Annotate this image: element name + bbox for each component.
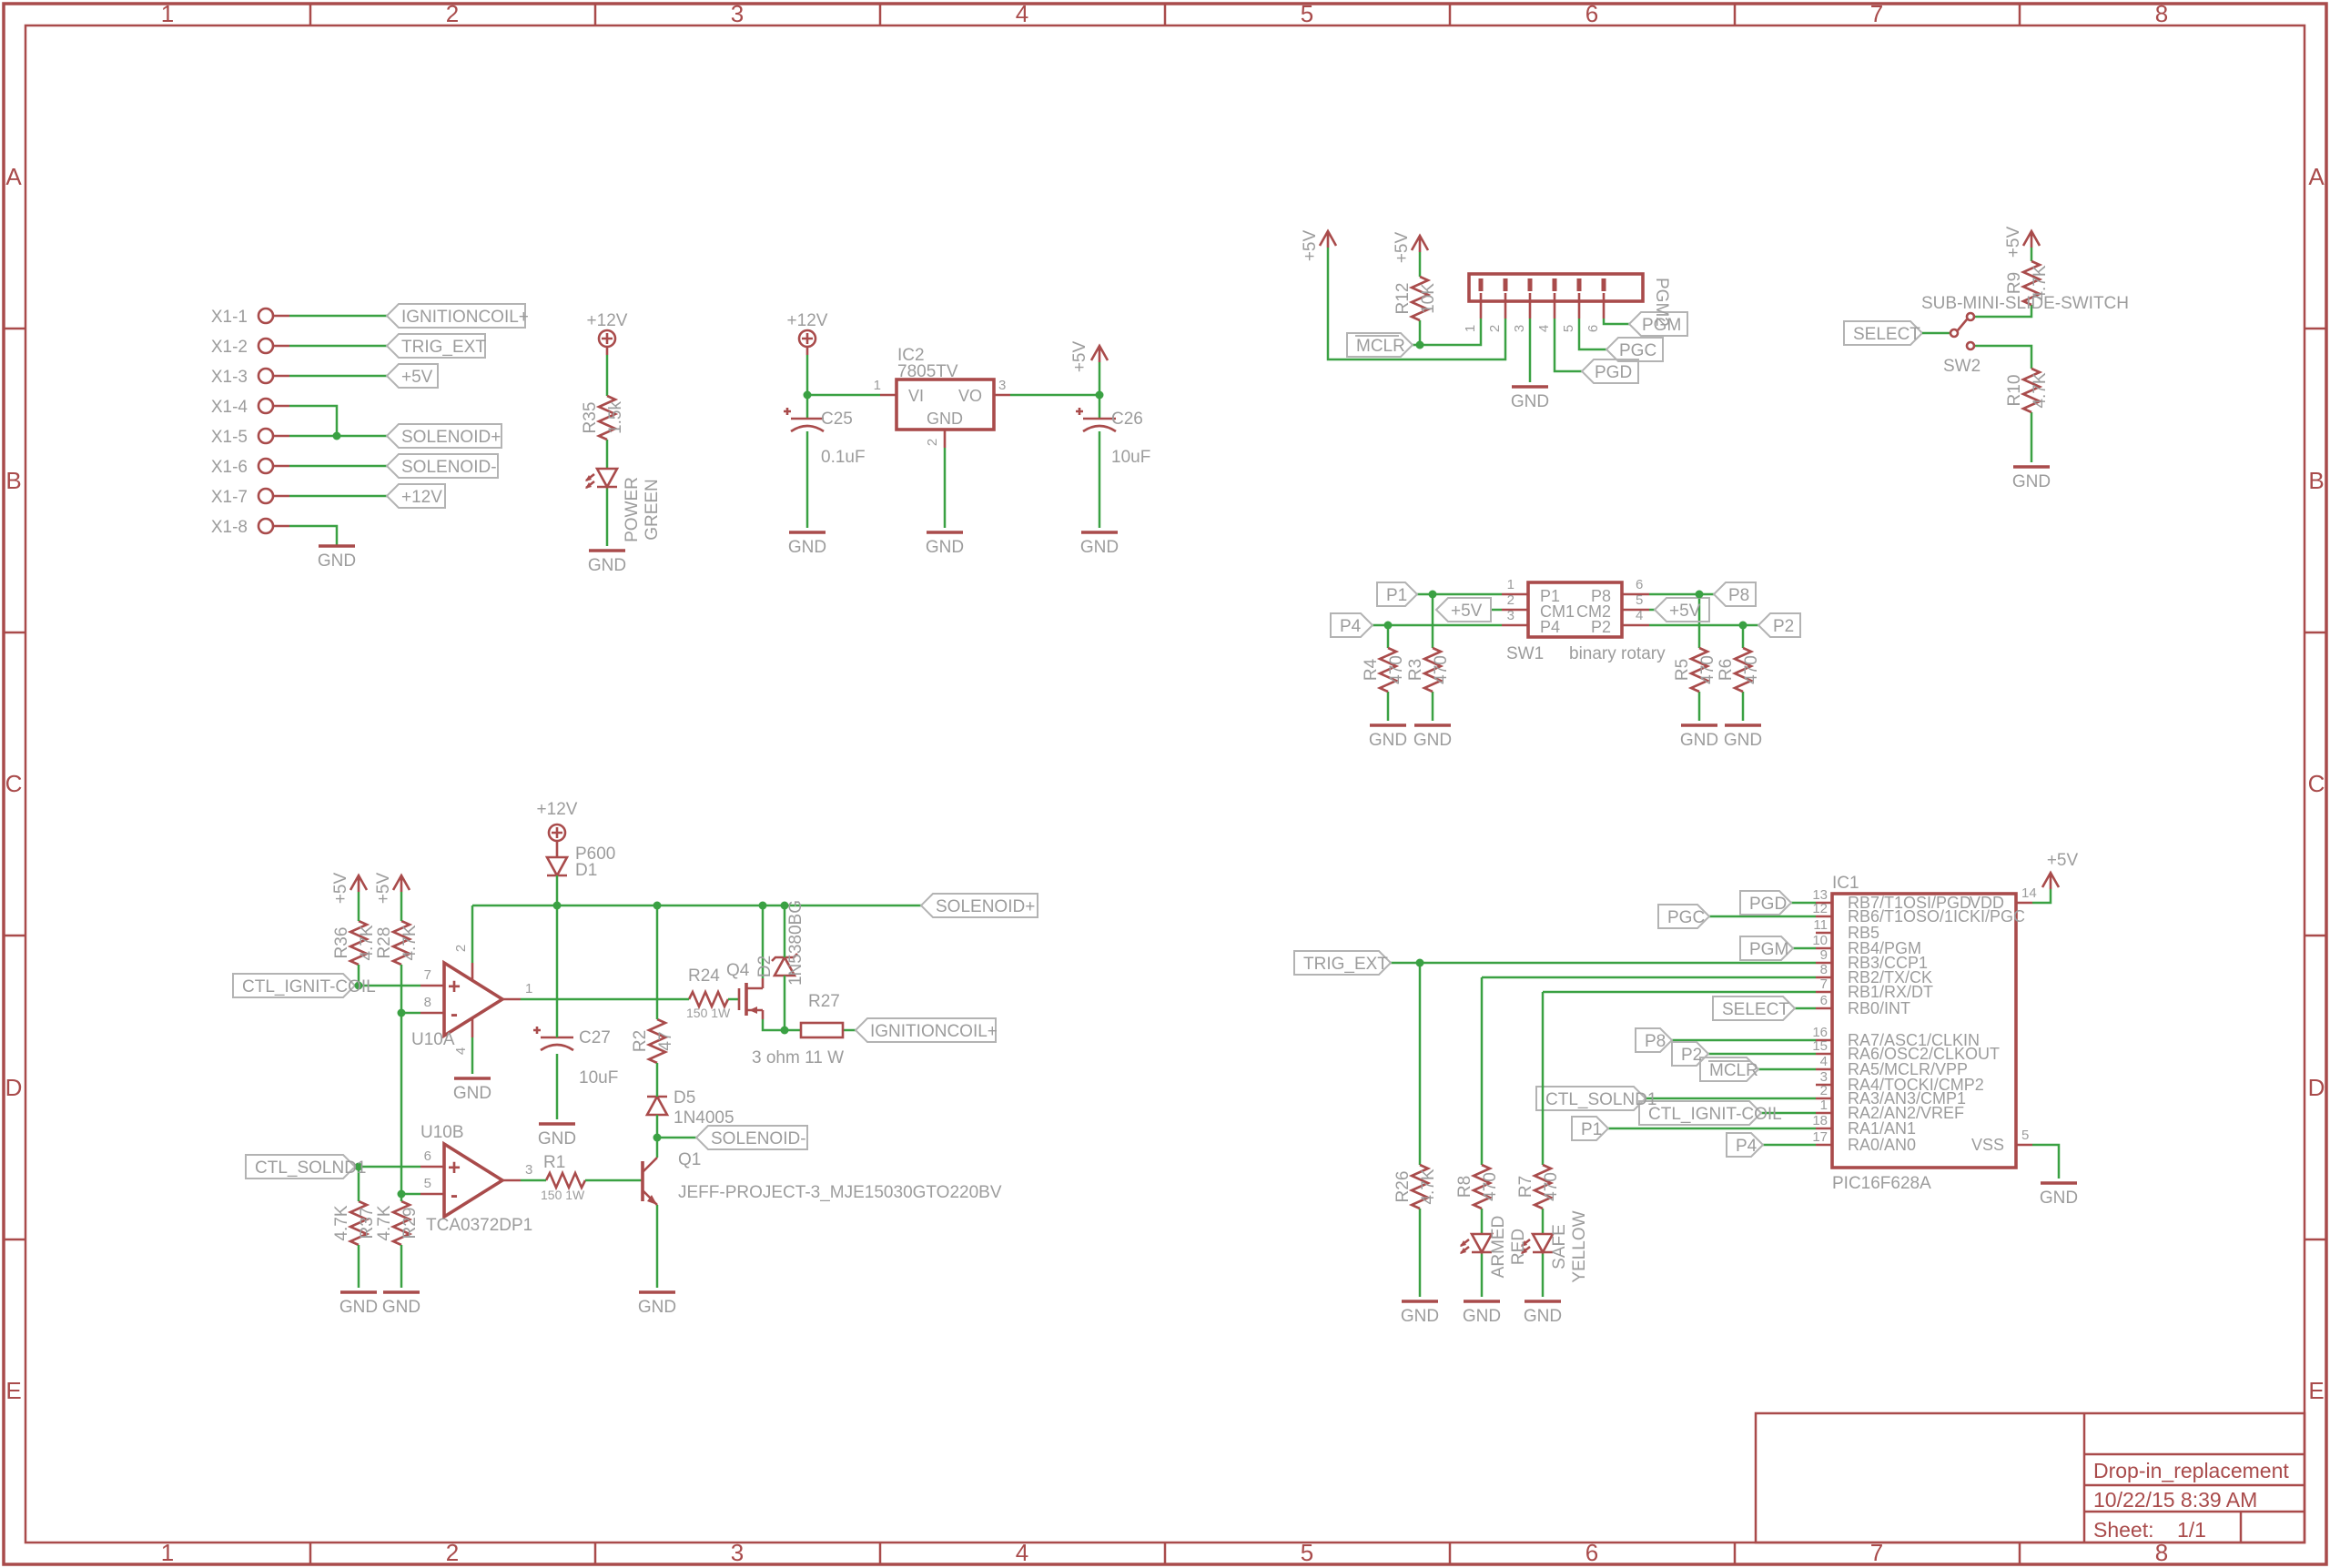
label-regulator-gnd: GND <box>926 538 964 557</box>
label-driver-gnd: GND <box>382 1298 420 1317</box>
label-connector-pins-0-net: IGNITIONCOIL+ <box>401 308 529 327</box>
label-driver-c27v: 10uF <box>579 1068 618 1087</box>
label-border-columns-3: 4 <box>1016 1539 1028 1566</box>
label-driver-sol_p: SOLENOID+ <box>936 897 1035 916</box>
label-mcu-rows-4-n: 9 <box>1820 947 1828 963</box>
label-pgm2-rv: 10K <box>1419 283 1438 314</box>
schematic-labels: 1234567812345678ABCDEABCDEDrop-in_replac… <box>5 0 2325 1566</box>
label-driver-plus: + <box>448 1156 461 1180</box>
label-driver-p6: 6 <box>424 1148 431 1164</box>
label-rotary-pins_r-0: 6 <box>1636 577 1643 592</box>
label-mcu-rows-0-flag: PGD <box>1749 895 1787 914</box>
label-mcu-vcc: +5V <box>2047 851 2079 870</box>
label-slide_switch-r_up_v: 4.7K <box>2031 265 2050 300</box>
label-driver-q4: Q4 <box>726 961 750 980</box>
label-driver-d2: D2 <box>755 956 775 977</box>
label-driver-gnd: GND <box>538 1129 576 1148</box>
label-driver-minus: - <box>451 1002 458 1027</box>
label-connector-pins-5-net: SOLENOID- <box>401 458 497 477</box>
label-driver-oa: U10A <box>411 1030 455 1049</box>
label-rotary-gnd: GND <box>1724 731 1762 750</box>
label-mcu-rows-13-flag: CTL_IGNIT-COIL <box>1648 1105 1782 1124</box>
label-driver-r28: R28 <box>375 927 394 959</box>
label-mcu-p14: 14 <box>2021 885 2037 901</box>
label-driver-r1: R1 <box>543 1153 565 1172</box>
label-border-rows-0: A <box>5 163 22 190</box>
label-mcu-rows-9-n: 15 <box>1812 1038 1828 1054</box>
label-connector-pins-1-name: X1-2 <box>211 338 248 357</box>
label-indicators-r26: R26 <box>1393 1171 1413 1203</box>
label-driver-d5: D5 <box>674 1088 695 1108</box>
label-pgm2-vcc: +5V <box>1393 232 1412 264</box>
label-driver-oa_part: TCA0372DP1 <box>426 1216 532 1235</box>
label-border-columns-0: 1 <box>161 0 174 27</box>
label-regulator-p2: 2 <box>925 439 940 446</box>
label-mcu-rows-12-flag: CTL_SOLND1 <box>1545 1090 1657 1109</box>
label-indicators-led1b: RED <box>1509 1229 1528 1265</box>
label-rotary-flags_l-0: P1 <box>1386 586 1407 605</box>
label-driver-r29v: 4.7K <box>375 1205 394 1240</box>
label-mcu-vss: VSS <box>1971 1136 2004 1154</box>
label-driver-r2: R2 <box>631 1030 650 1052</box>
label-mcu-rows-10-flag: MCLR <box>1709 1061 1758 1080</box>
label-regulator-cout: C26 <box>1111 410 1143 429</box>
label-mcu-rows-14-flag: P1 <box>1581 1120 1602 1139</box>
label-rotary-gnd: GND <box>1680 731 1718 750</box>
label-regulator-out: +5V <box>1070 341 1089 373</box>
label-driver-p2: 2 <box>453 945 469 952</box>
label-indicators-trig: TRIG_EXT <box>1303 955 1388 974</box>
label-driver-p8: 8 <box>424 995 431 1010</box>
label-pgm2-pins-5: 6 <box>1585 325 1601 332</box>
label-indicators-led2b: YELLOW <box>1570 1210 1589 1282</box>
label-indicators-r7v: 470 <box>1542 1172 1561 1201</box>
label-rotary-res-3-n: R6 <box>1717 659 1736 681</box>
label-pgm2-pins-0: 1 <box>1463 325 1478 332</box>
label-driver-d1: D1 <box>575 861 597 880</box>
label-mcu-rows-7-flag: SELECT <box>1722 1000 1789 1019</box>
label-driver-r37: R37 <box>358 1208 377 1239</box>
label-rotary-name: SW1 <box>1506 644 1544 663</box>
label-mcu-rows-15-flag: P4 <box>1736 1137 1758 1156</box>
label-driver-gnd: GND <box>453 1084 491 1103</box>
label-border-columns-2: 3 <box>731 0 744 27</box>
label-indicators-gnd: GND <box>1524 1307 1562 1326</box>
label-driver-minus: - <box>451 1183 458 1208</box>
label-slide_switch-gnd: GND <box>2012 472 2051 491</box>
label-power_led-rv: 1.5k <box>606 401 625 434</box>
label-border-rows-2: C <box>2308 770 2325 797</box>
label-border-columns-0: 1 <box>161 1539 174 1566</box>
label-rotary-pins_l-1: 2 <box>1507 592 1514 608</box>
label-rotary-flags_r-0: P8 <box>1728 586 1749 605</box>
label-slide_switch-net: SELECT <box>1853 325 1920 344</box>
label-rotary-res-1-n: R3 <box>1406 659 1425 681</box>
label-mcu-rows-15-name: RA0/AN0 <box>1848 1136 1916 1154</box>
label-border-columns-7: 8 <box>2155 0 2168 27</box>
label-indicators-r8v: 470 <box>1481 1172 1500 1201</box>
label-regulator-coutv: 10uF <box>1111 448 1150 467</box>
label-mcu-rows-7-n: 6 <box>1820 993 1828 1008</box>
label-driver-d2p: 1N5380BG <box>786 900 805 986</box>
label-slide_switch-r_up: R9 <box>2005 272 2024 294</box>
label-mcu-rows-1-n: 12 <box>1812 901 1828 916</box>
label-border-columns-6: 7 <box>1870 1539 1883 1566</box>
label-border-columns-6: 7 <box>1870 0 1883 27</box>
label-border-columns-1: 2 <box>446 1539 459 1566</box>
label-pgm2-vcc: +5V <box>1301 230 1320 262</box>
label-mcu-rows-5-n: 8 <box>1820 962 1828 977</box>
schematic-sheet: 1234567812345678ABCDEABCDEDrop-in_replac… <box>0 0 2330 1568</box>
power-indicator <box>585 330 625 551</box>
label-pgm2-pins-1: 2 <box>1487 325 1503 332</box>
label-rotary-res-0-v: 470 <box>1387 655 1406 684</box>
label-rotary-res-3-v: 470 <box>1742 655 1761 684</box>
label-power_led-gnd: GND <box>588 556 626 575</box>
label-driver-vcc12: +12V <box>537 800 578 819</box>
label-driver-r2v: 47 <box>656 1031 675 1050</box>
label-pgm2-gnd: GND <box>1511 392 1549 411</box>
label-border-rows-4: E <box>2308 1377 2324 1404</box>
label-connector-pins-3-name: X1-4 <box>211 398 248 417</box>
label-driver-p3: 3 <box>525 1162 532 1178</box>
label-indicators-led1a: ARMED <box>1489 1216 1508 1279</box>
label-rotary-flags_r-1: +5V <box>1669 602 1701 621</box>
label-connector-pins-1-net: TRIG_EXT <box>401 338 486 357</box>
label-border-rows-1: B <box>2308 467 2324 494</box>
label-mcu-rows-12-n: 2 <box>1820 1083 1828 1098</box>
label-driver-d5p: 1N4005 <box>674 1108 734 1128</box>
label-border-columns-5: 6 <box>1585 0 1598 27</box>
label-mcu-rows-2-n: 11 <box>1813 917 1828 933</box>
label-rotary-pins_l-0: 1 <box>1507 577 1514 592</box>
label-rotary-flags_r-2: P2 <box>1773 617 1794 636</box>
label-mcu-vdd: VDD <box>1970 894 2004 912</box>
label-connector-gnd: GND <box>318 551 356 571</box>
label-driver-r24: R24 <box>688 966 720 986</box>
label-border-columns-4: 5 <box>1301 1539 1313 1566</box>
label-pgm2-pgd: PGD <box>1595 363 1632 382</box>
label-power_led-led1: POWER <box>623 477 642 542</box>
label-mcu-rows-14-name: RA1/AN1 <box>1848 1119 1916 1138</box>
label-rotary-pins_r-1: 5 <box>1636 592 1643 608</box>
label-rotary-pins_l-2: 3 <box>1507 608 1514 623</box>
label-driver-p5: 5 <box>424 1176 431 1191</box>
label-rotary-inside_l-2: P4 <box>1540 618 1560 636</box>
label-indicators-r7: R7 <box>1516 1176 1535 1198</box>
label-rotary-pins_r-2: 4 <box>1636 608 1643 623</box>
label-power_led-supply: +12V <box>587 311 628 330</box>
label-driver-r27v: 3 ohm 11 W <box>752 1048 844 1067</box>
label-driver-in2: CTL_SOLND1 <box>255 1158 367 1178</box>
label-pgm2-r: R12 <box>1393 283 1413 315</box>
label-connector-pins-5-name: X1-6 <box>211 458 248 477</box>
label-indicators-gnd: GND <box>1463 1307 1501 1326</box>
label-border-rows-0: A <box>2308 163 2325 190</box>
label-driver-c27: C27 <box>579 1028 611 1047</box>
label-border-columns-4: 5 <box>1301 0 1313 27</box>
label-driver-r36v: 4.7K <box>358 925 377 960</box>
label-rotary-res-2-v: 470 <box>1698 655 1717 684</box>
label-connector-pins-0-name: X1-1 <box>211 308 248 327</box>
junction-dots <box>333 341 1747 1199</box>
label-border-columns-3: 4 <box>1016 0 1028 27</box>
label-driver-r24v: 150 1W <box>686 1006 731 1020</box>
label-slide_switch-vcc: +5V <box>2004 227 2023 258</box>
label-driver-p1: 1 <box>525 981 532 996</box>
label-regulator-vi: VI <box>908 387 924 405</box>
label-driver-r36: R36 <box>332 927 351 959</box>
label-regulator-cin: C25 <box>821 410 853 429</box>
label-title_block-title: Drop-in_replacement <box>2093 1459 2289 1482</box>
label-border-rows-2: C <box>5 770 23 797</box>
label-regulator-p1: 1 <box>874 378 881 393</box>
label-driver-r29: R29 <box>400 1208 420 1239</box>
label-rotary-res-2-n: R5 <box>1673 659 1692 681</box>
schematic-canvas: 1234567812345678ABCDEABCDEDrop-in_replac… <box>0 0 2330 1568</box>
label-driver-gnd: GND <box>339 1298 378 1317</box>
label-regulator-gnd_pin: GND <box>927 410 963 428</box>
label-slide_switch-r_dn: R10 <box>2005 375 2024 407</box>
label-mcu-ic: IC1 <box>1832 874 1859 893</box>
label-title_block-sheet_label: Sheet: <box>2093 1518 2154 1542</box>
label-driver-p4: 4 <box>453 1047 469 1055</box>
label-mcu-rows-1-flag: PGC <box>1667 908 1705 927</box>
label-mcu-p5: 5 <box>2021 1128 2029 1143</box>
label-driver-ob: U10B <box>420 1123 464 1142</box>
label-power_led-r: R35 <box>581 402 600 434</box>
label-border-rows-4: E <box>5 1377 21 1404</box>
label-driver-in1: CTL_IGNIT-COIL <box>242 977 376 996</box>
label-mcu-rows-9-flag: P2 <box>1681 1046 1702 1065</box>
label-indicators-r8: R8 <box>1455 1176 1474 1198</box>
label-slide_switch-part: SUB-MINI-SLIDE-SWITCH <box>1921 294 2129 313</box>
label-indicators-gnd: GND <box>1401 1307 1439 1326</box>
label-border-columns-1: 2 <box>446 0 459 27</box>
label-power_led-led2: GREEN <box>643 479 662 541</box>
label-driver-sol_m: SOLENOID- <box>711 1129 806 1148</box>
label-mcu-rows-14-n: 18 <box>1812 1113 1828 1128</box>
label-driver-q1: Q1 <box>678 1150 701 1169</box>
label-indicators-led2a: SAFE <box>1550 1224 1569 1270</box>
label-driver-p7: 7 <box>424 967 431 983</box>
label-pgm2-pins-3: 4 <box>1536 325 1552 332</box>
label-driver-r28v: 4.7K <box>400 925 420 960</box>
label-driver-plus: + <box>448 975 461 999</box>
label-driver-vcc: +5V <box>374 873 393 905</box>
label-driver-r37v: 4.7K <box>332 1205 351 1240</box>
label-driver-ign: IGNITIONCOIL+ <box>870 1022 998 1041</box>
label-mcu-gnd: GND <box>2040 1189 2078 1208</box>
label-rotary-flags_l-2: P4 <box>1340 617 1362 636</box>
label-regulator-supply: +12V <box>787 311 828 330</box>
label-rotary-res-1-v: 470 <box>1432 655 1451 684</box>
label-indicators-r26v: 4.7K <box>1419 1168 1438 1204</box>
label-title_block-date: 10/22/15 8:39 AM <box>2093 1488 2257 1512</box>
sheet-border <box>4 4 2326 1564</box>
label-pgm2-pgc: PGC <box>1619 341 1656 360</box>
label-border-rows-3: D <box>2308 1074 2325 1101</box>
label-connector-pins-4-name: X1-5 <box>211 428 248 447</box>
label-mcu-rows-8-flag: P8 <box>1645 1032 1666 1051</box>
label-connector-pins-2-net: +5V <box>401 368 433 387</box>
label-mcu-rows-3-n: 10 <box>1812 933 1828 948</box>
label-rotary-gnd: GND <box>1413 731 1452 750</box>
label-title_block-sheet_value: 1/1 <box>2177 1518 2206 1542</box>
label-regulator-vo: VO <box>958 387 982 405</box>
label-pgm2-mclr: MCLR <box>1356 337 1405 356</box>
icsp-header-pgm2 <box>1320 231 1687 387</box>
label-connector-pins-6-name: X1-7 <box>211 488 248 507</box>
label-rotary-part: binary rotary <box>1569 644 1666 663</box>
slide-switch-sw2 <box>1844 231 2050 467</box>
label-connector-pins-6-net: +12V <box>401 488 442 507</box>
label-rotary-res-0-n: R4 <box>1362 658 1381 681</box>
label-regulator-gnd: GND <box>1080 538 1119 557</box>
label-regulator-p3: 3 <box>998 378 1006 393</box>
label-slide_switch-r_dn_v: 4.7K <box>2031 372 2050 408</box>
label-pgm2-pins-4: 5 <box>1561 325 1576 332</box>
label-regulator-cinv: 0.1uF <box>821 448 866 467</box>
label-mcu-part: PIC16F628A <box>1832 1174 1931 1193</box>
label-rotary-inside_r-2: P2 <box>1591 618 1611 636</box>
label-regulator-gnd: GND <box>788 538 826 557</box>
label-pgm2-pins-2: 3 <box>1512 325 1527 332</box>
label-border-columns-5: 6 <box>1585 1539 1598 1566</box>
label-mcu-rows-13-n: 1 <box>1820 1098 1828 1113</box>
voltage-regulator <box>784 330 1118 532</box>
label-rotary-flags_l-1: +5V <box>1451 602 1483 621</box>
label-border-columns-7: 8 <box>2155 1539 2168 1566</box>
label-mcu-rows-6-name: RB1/RX/DT <box>1848 983 1933 1001</box>
label-connector-pins-7-name: X1-8 <box>211 518 248 537</box>
label-driver-vcc: +5V <box>331 873 350 905</box>
label-driver-q1p: JEFF-PROJECT-3_MJE15030GTO220BV <box>678 1183 1002 1202</box>
label-rotary-gnd: GND <box>1369 731 1407 750</box>
label-border-rows-3: D <box>5 1074 23 1101</box>
label-regulator-part: 7805TV <box>897 362 958 381</box>
driver-stage <box>233 824 1038 1292</box>
label-mcu-rows-6-n: 7 <box>1820 976 1828 992</box>
label-connector-pins-4-net: SOLENOID+ <box>401 428 501 447</box>
label-border-rows-1: B <box>5 467 21 494</box>
label-border-columns-2: 3 <box>731 1539 744 1566</box>
label-mcu-rows-3-flag: PGM <box>1749 940 1788 959</box>
label-mcu-rows-10-n: 4 <box>1820 1054 1828 1069</box>
label-driver-gnd: GND <box>638 1298 676 1317</box>
label-mcu-rows-7-name: RB0/INT <box>1848 999 1910 1017</box>
label-driver-r1v: 150 1W <box>541 1188 585 1202</box>
label-driver-r27: R27 <box>808 992 840 1011</box>
label-pgm2-pgm: PGM <box>1642 316 1681 335</box>
label-connector-pins-2-name: X1-3 <box>211 368 248 387</box>
label-slide_switch-name: SW2 <box>1943 357 1980 376</box>
label-mcu-rows-15-n: 17 <box>1812 1129 1828 1145</box>
